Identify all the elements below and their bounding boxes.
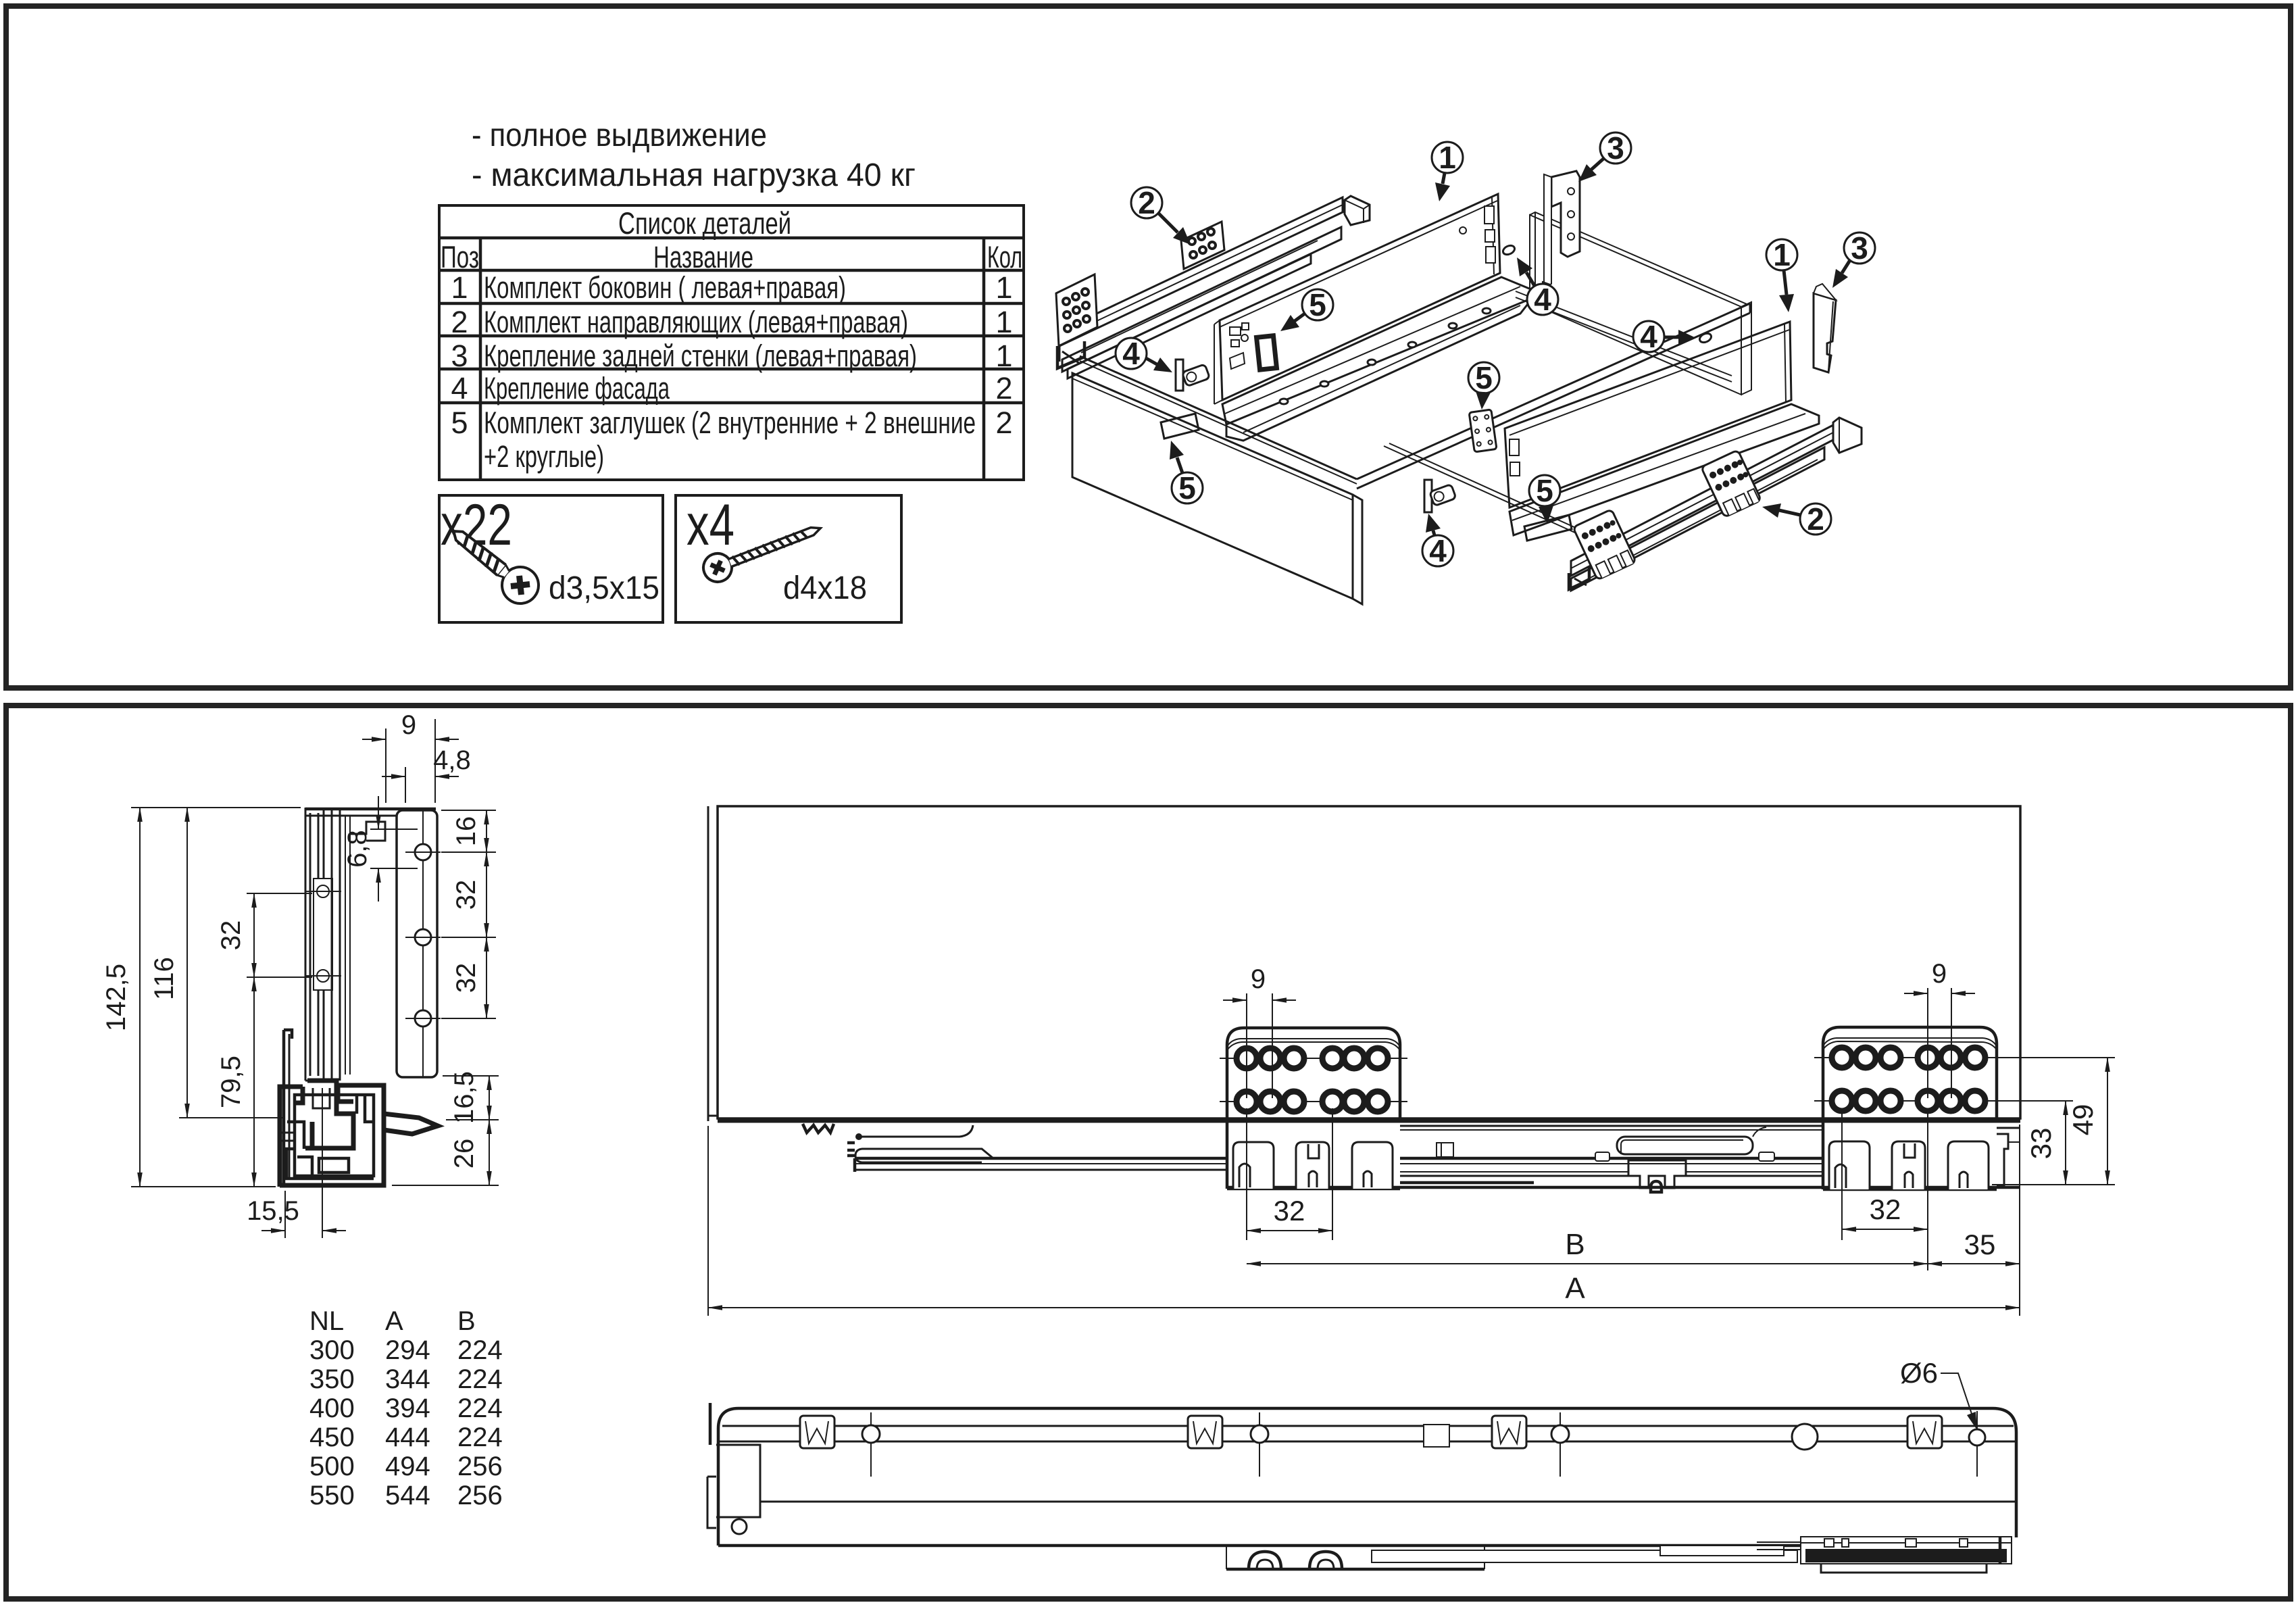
- svg-text:Поз: Поз: [441, 240, 479, 274]
- svg-text:- полное выдвижение: - полное выдвижение: [472, 118, 767, 153]
- svg-text:32: 32: [451, 963, 481, 993]
- svg-text:294: 294: [385, 1335, 430, 1365]
- svg-text:4: 4: [1534, 282, 1551, 317]
- svg-text:344: 344: [385, 1364, 430, 1394]
- svg-text:500: 500: [309, 1452, 355, 1481]
- svg-text:4: 4: [1429, 533, 1447, 568]
- svg-text:550: 550: [309, 1481, 355, 1510]
- svg-text:3: 3: [451, 339, 468, 373]
- svg-text:Крепление фасада: Крепление фасада: [484, 371, 670, 405]
- svg-text:1: 1: [451, 270, 468, 305]
- svg-text:+2 круглые): +2 круглые): [484, 439, 604, 474]
- svg-text:1: 1: [1439, 140, 1456, 175]
- svg-text:NL: NL: [309, 1306, 344, 1336]
- svg-text:5: 5: [451, 405, 468, 440]
- svg-text:5: 5: [1536, 473, 1553, 508]
- svg-text:4: 4: [1640, 319, 1657, 354]
- svg-text:9: 9: [401, 710, 416, 740]
- svg-text:32: 32: [1274, 1195, 1305, 1227]
- svg-text:394: 394: [385, 1393, 430, 1423]
- svg-text:16,5: 16,5: [449, 1071, 479, 1124]
- svg-text:142,5: 142,5: [101, 964, 131, 1031]
- svg-text:79,5: 79,5: [216, 1056, 246, 1108]
- svg-text:Название: Название: [653, 240, 753, 274]
- svg-text:Кол: Кол: [987, 240, 1022, 274]
- svg-text:d4x18: d4x18: [783, 570, 867, 606]
- svg-text:4,8: 4,8: [433, 745, 471, 775]
- svg-text:256: 256: [457, 1452, 503, 1481]
- svg-text:400: 400: [309, 1393, 355, 1423]
- svg-text:1: 1: [995, 270, 1012, 305]
- svg-text:494: 494: [385, 1452, 430, 1481]
- svg-text:3: 3: [1851, 230, 1868, 266]
- svg-text:3: 3: [1607, 130, 1624, 166]
- svg-text:Ø6: Ø6: [1900, 1357, 1938, 1389]
- svg-text:1: 1: [1773, 237, 1791, 272]
- svg-text:116: 116: [149, 957, 179, 1000]
- svg-text:B: B: [1565, 1228, 1584, 1261]
- svg-text:32: 32: [451, 880, 481, 910]
- svg-text:32: 32: [1870, 1193, 1901, 1225]
- svg-text:A: A: [385, 1306, 403, 1336]
- svg-text:15,5: 15,5: [247, 1196, 299, 1226]
- svg-text:4: 4: [1122, 336, 1140, 371]
- svg-text:2: 2: [451, 305, 468, 339]
- svg-text:2: 2: [1807, 501, 1824, 537]
- svg-text:450: 450: [309, 1423, 355, 1452]
- svg-text:32: 32: [216, 920, 246, 951]
- svg-text:35: 35: [1964, 1229, 1996, 1260]
- svg-text:444: 444: [385, 1423, 430, 1452]
- svg-text:350: 350: [309, 1364, 355, 1394]
- svg-text:256: 256: [457, 1481, 503, 1510]
- svg-text:5: 5: [1475, 360, 1493, 395]
- svg-text:224: 224: [457, 1364, 503, 1394]
- svg-text:26: 26: [449, 1139, 479, 1169]
- svg-text:5: 5: [1309, 287, 1326, 322]
- svg-text:Комплект боковин ( левая+права: Комплект боковин ( левая+правая): [484, 270, 846, 305]
- svg-text:6,8: 6,8: [343, 830, 372, 868]
- svg-text:- максимальная нагрузка 40 кг: - максимальная нагрузка 40 кг: [472, 157, 916, 193]
- svg-text:1: 1: [995, 305, 1012, 339]
- svg-text:B: B: [457, 1306, 476, 1336]
- svg-text:Комплект направляющих (левая+п: Комплект направляющих (левая+правая): [484, 305, 908, 339]
- svg-text:33: 33: [2025, 1128, 2057, 1160]
- svg-text:Список деталей: Список деталей: [618, 206, 791, 241]
- svg-text:x4: x4: [687, 493, 734, 558]
- svg-text:4: 4: [451, 371, 468, 405]
- svg-text:49: 49: [2067, 1104, 2099, 1136]
- svg-text:2: 2: [995, 405, 1012, 440]
- svg-text:A: A: [1565, 1272, 1585, 1305]
- svg-text:16: 16: [451, 816, 481, 847]
- svg-text:5: 5: [1178, 470, 1196, 505]
- svg-text:9: 9: [1251, 964, 1266, 994]
- svg-text:224: 224: [457, 1393, 503, 1423]
- svg-text:224: 224: [457, 1335, 503, 1365]
- svg-text:Комплект заглушек (2 внутренни: Комплект заглушек (2 внутренние + 2 внеш…: [484, 405, 976, 440]
- svg-text:d3,5x15: d3,5x15: [549, 570, 659, 606]
- svg-text:224: 224: [457, 1423, 503, 1452]
- svg-text:300: 300: [309, 1335, 355, 1365]
- svg-text:1: 1: [995, 339, 1012, 373]
- svg-text:Крепление задней стенки (левая: Крепление задней стенки (левая+правая): [484, 339, 917, 373]
- svg-text:544: 544: [385, 1481, 430, 1510]
- svg-text:2: 2: [995, 371, 1012, 405]
- svg-text:9: 9: [1932, 959, 1947, 989]
- svg-text:2: 2: [1138, 185, 1155, 220]
